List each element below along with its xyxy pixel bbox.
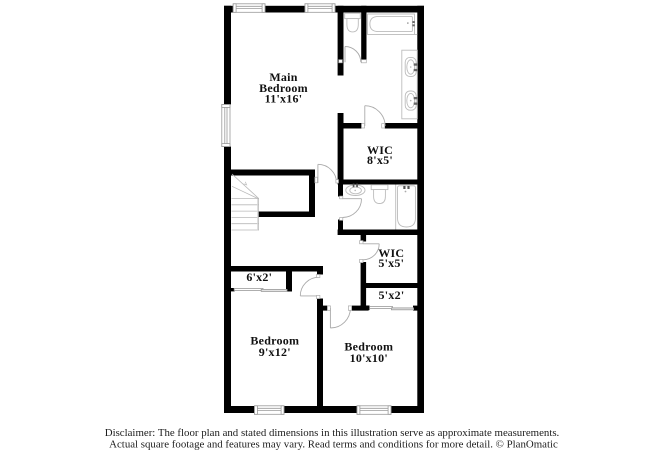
svg-text:Disclaimer: The floor plan and: Disclaimer: The floor plan and stated di… (105, 427, 560, 439)
svg-text:Actual square footage and feat: Actual square footage and features may v… (109, 438, 558, 450)
svg-text:9'x12': 9'x12' (259, 345, 291, 359)
svg-text:8'x5': 8'x5' (367, 153, 393, 167)
svg-text:5'x2': 5'x2' (379, 288, 405, 302)
svg-text:5'x5': 5'x5' (378, 256, 404, 270)
svg-text:10'x10': 10'x10' (350, 351, 388, 365)
svg-text:6'x2': 6'x2' (246, 270, 272, 284)
svg-text:11'x16': 11'x16' (265, 91, 303, 105)
